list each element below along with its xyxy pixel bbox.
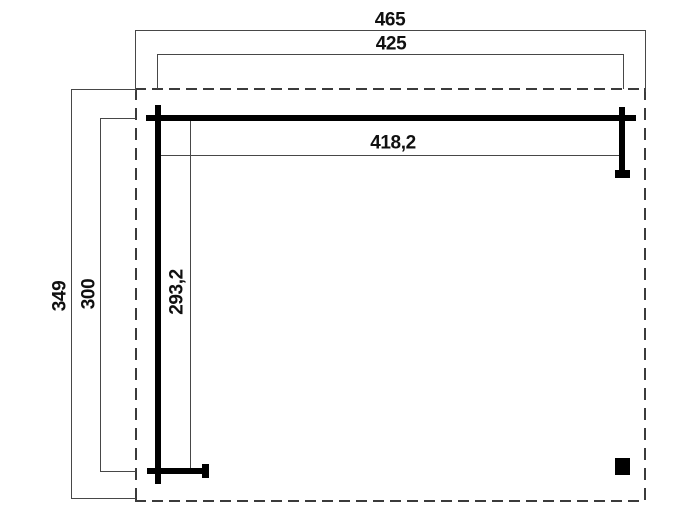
post-square-bottom-right: [615, 458, 630, 475]
dimension-label-425: 425: [376, 35, 407, 54]
dimension-label-293-2: 293,2: [168, 269, 187, 315]
dimension-label-300: 300: [80, 279, 99, 310]
post-foot-top-right: [615, 170, 630, 178]
extension-tick-349-top: [71, 89, 136, 90]
dimension-label-418-2: 418,2: [370, 134, 416, 153]
post-marker-bottom-left: [147, 468, 205, 474]
post-foot-bottom-left: [202, 464, 209, 478]
dashed-outline-left: [135, 88, 137, 502]
dashed-outline-bottom: [135, 500, 645, 502]
dimension-line-349: [71, 89, 72, 499]
dashed-outline-right: [644, 88, 646, 502]
extension-tick-465-right: [645, 30, 646, 92]
extension-tick-300-top: [100, 118, 136, 119]
extension-tick-349-bottom: [71, 498, 136, 499]
post-marker-top-right: [619, 107, 625, 170]
dimension-drawing: 465 425 349 300 418,2 293,2: [0, 0, 700, 525]
dimension-label-349: 349: [51, 281, 70, 312]
dashed-outline-top: [135, 88, 645, 90]
dimension-line-300: [100, 118, 101, 472]
dimension-label-465: 465: [375, 11, 406, 30]
front-beam-line: [146, 115, 636, 121]
extension-tick-425-left: [157, 54, 158, 89]
dimension-line-293-2: [190, 121, 191, 468]
left-beam-line: [155, 105, 161, 484]
extension-tick-465-left: [135, 30, 136, 92]
dimension-line-418-2: [158, 155, 622, 156]
extension-tick-425-right: [623, 54, 624, 89]
extension-tick-300-bottom: [100, 471, 136, 472]
